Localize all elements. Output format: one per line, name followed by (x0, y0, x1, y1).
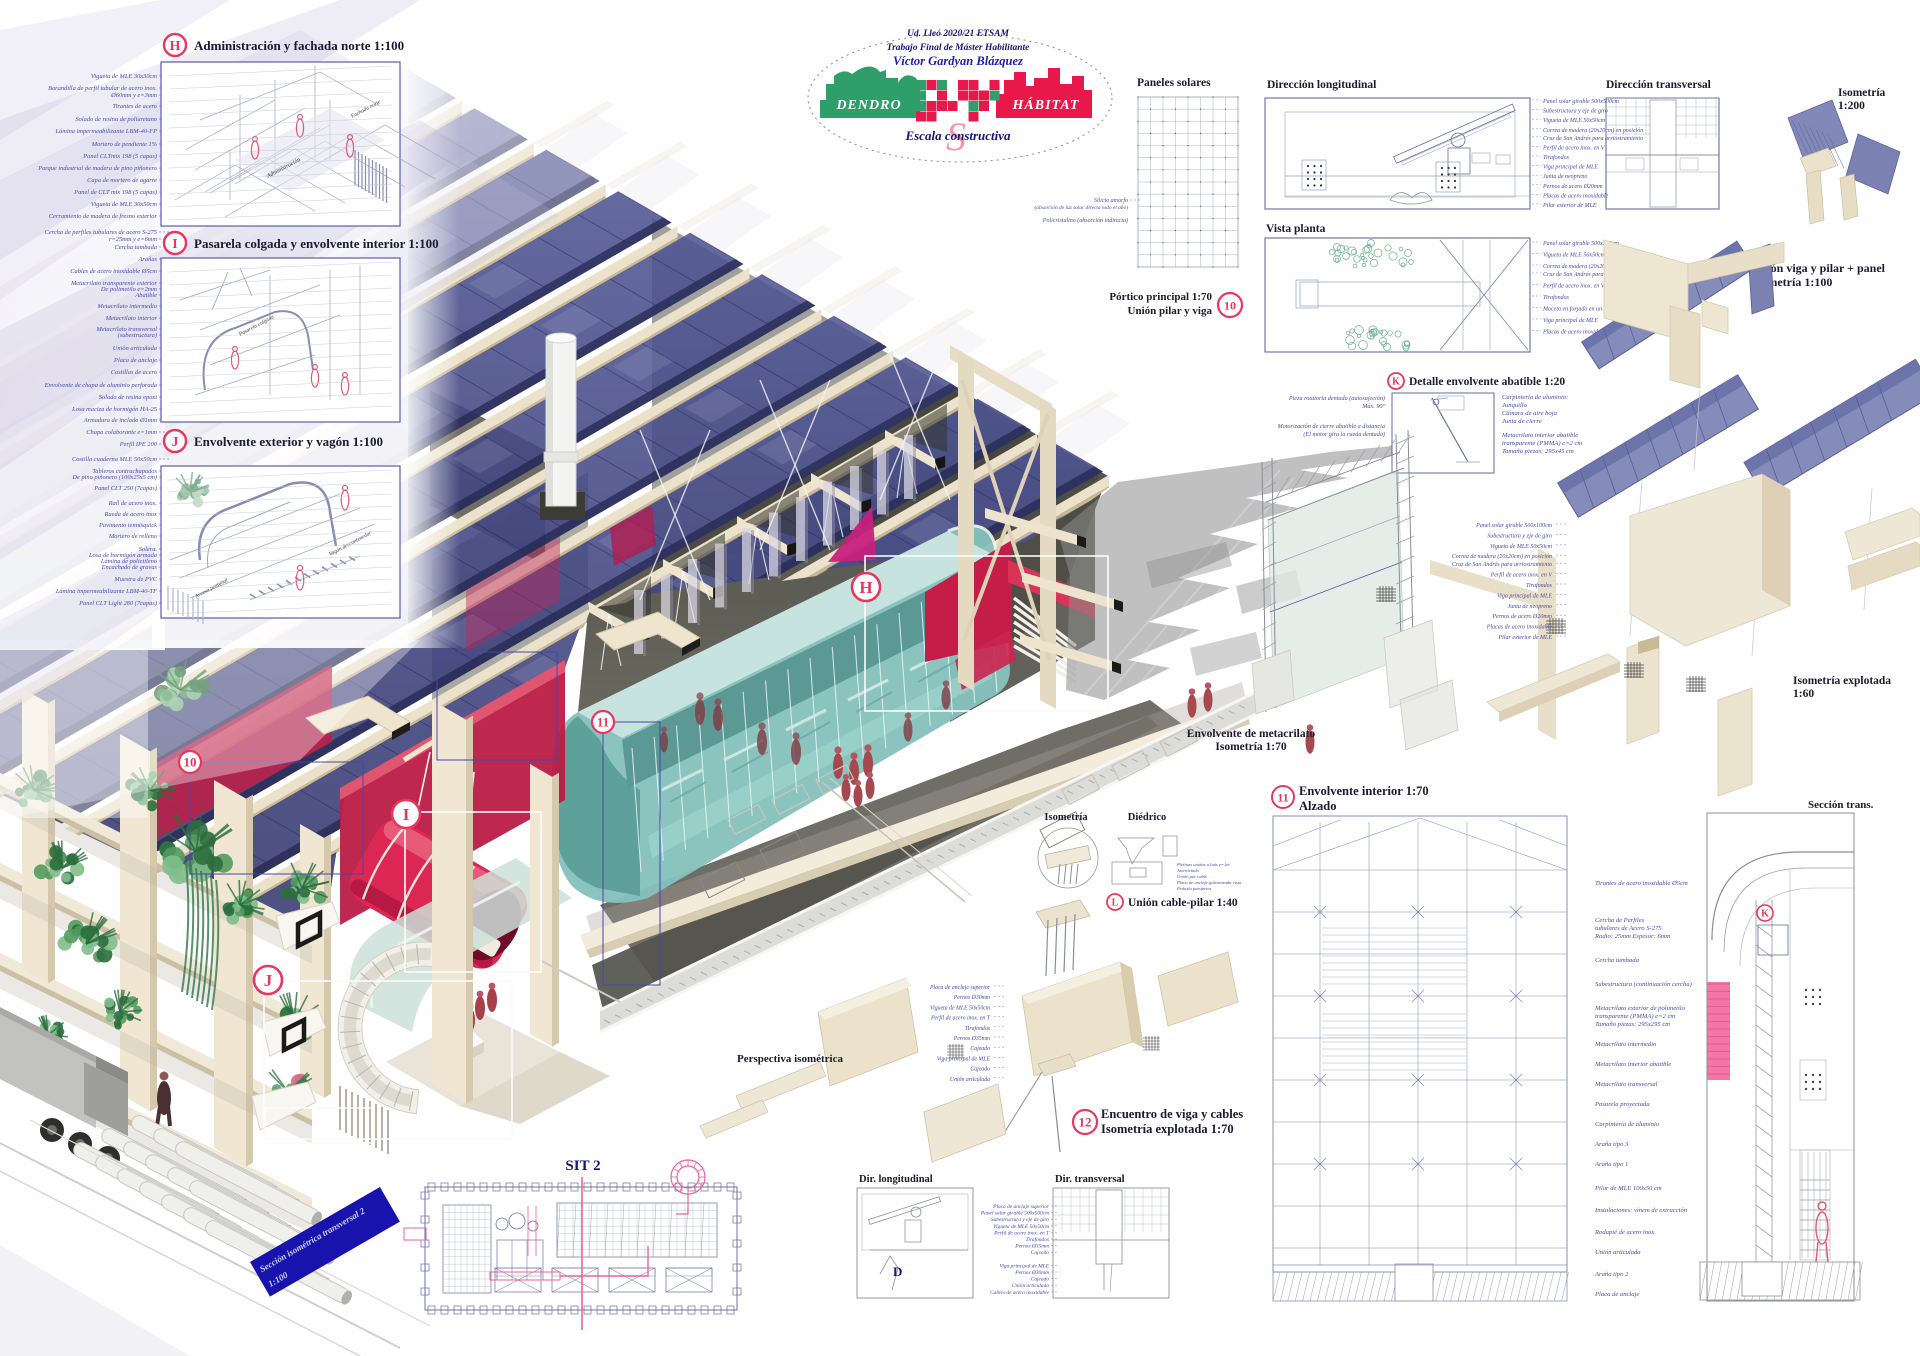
svg-text:Isometría explotada: Isometría explotada (1793, 675, 1891, 687)
svg-text:Pernos Ø30mm: Pernos Ø30mm (953, 995, 990, 1001)
svg-text:Viga principal de MLE: Viga principal de MLE (937, 1056, 991, 1062)
svg-text:HÁBITAT: HÁBITAT (1012, 96, 1080, 113)
svg-text:Lámina impermeabilizante LBM-4: Lámina impermeabilizante LBM-40-TF (55, 588, 157, 595)
svg-text:Panel solar girable 500x500cm: Panel solar girable 500x500cm (980, 1211, 1049, 1217)
svg-text:Envolvente exterior y vagón 1: Envolvente exterior y vagón 1:100 (194, 434, 383, 449)
svg-text:Viga principal de MLE: Viga principal de MLE (1543, 165, 1598, 171)
svg-text:Tirafondos: Tirafondos (1526, 582, 1553, 589)
svg-text:Rodapié de acero inox.: Rodapié de acero inox. (1594, 1229, 1656, 1236)
svg-text:Panel de CLT mix 198 (5 capas): Panel de CLT mix 198 (5 capas) (73, 189, 157, 196)
svg-text:Cercha de perfiles tubulares d: Cercha de perfiles tubulares de acero S-… (44, 229, 157, 236)
svg-text:Cercha tumbada: Cercha tumbada (114, 244, 157, 251)
svg-text:Vista planta: Vista planta (1266, 223, 1326, 235)
svg-text:Panel CLT Light 280 (7capas): Panel CLT Light 280 (7capas) (78, 600, 157, 607)
svg-text:Ø60mm y e=3mm: Ø60mm y e=3mm (110, 92, 157, 99)
svg-text:Pieza rotatoria dentada (autos: Pieza rotatoria dentada (autosujeción) (1288, 395, 1385, 402)
svg-text:Vigueta de MLE 30x50cm: Vigueta de MLE 30x50cm (91, 201, 157, 208)
svg-text:10: 10 (184, 755, 197, 770)
svg-text:1:60: 1:60 (1793, 688, 1814, 700)
svg-text:Carpintería de aluminio:: Carpintería de aluminio: (1502, 394, 1568, 401)
svg-text:Subestructura y eje de giro: Subestructura y eje de giro (1543, 109, 1608, 115)
svg-text:Sección trans.: Sección trans. (1808, 799, 1874, 811)
svg-text:Unión cable-pilar 1:40: Unión cable-pilar 1:40 (1128, 897, 1238, 909)
svg-text:Pernos de acero Ø20mm: Pernos de acero Ø20mm (1491, 614, 1552, 620)
svg-text:Vigueta de MLE 50x50cm: Vigueta de MLE 50x50cm (1543, 253, 1606, 259)
svg-text:Junquillo: Junquillo (1502, 402, 1528, 409)
svg-text:Viga principal de MLE: Viga principal de MLE (1497, 593, 1552, 599)
svg-text:Placas de acero inoxidable: Placas de acero inoxidable (1486, 625, 1553, 631)
svg-text:Perfil de acero inox. en T: Perfil de acero inox. en T (993, 1229, 1050, 1236)
svg-text:Unión pilar y viga: Unión pilar y viga (1128, 305, 1213, 317)
svg-text:Lámina impermeabilizante LBM-4: Lámina impermeabilizante LBM-40-FP (54, 128, 157, 135)
svg-text:Pernos Ø35mm: Pernos Ø35mm (1014, 1244, 1049, 1250)
svg-text:Peñasla parapetos: Peñasla parapetos (1176, 886, 1212, 891)
svg-text:Costilla cuaderna MLE 50x50cm: Costilla cuaderna MLE 50x50cm (72, 456, 157, 463)
svg-text:Pasarela colgada y envolvente: Pasarela colgada y envolvente interior 1… (194, 236, 439, 251)
svg-text:Tamaño piezas: 295x295 cm: Tamaño piezas: 295x295 cm (1595, 1021, 1670, 1028)
svg-text:Placas de acero inoxidable: Placas de acero inoxidable (1542, 193, 1609, 199)
svg-text:Losa maciza de hormigón HA-25: Losa maciza de hormigón HA-25 (71, 406, 157, 413)
svg-text:Tirafondos: Tirafondos (1543, 154, 1570, 161)
svg-text:Metacrilato interior abatible: Metacrilato interior abatible (1594, 1061, 1671, 1068)
svg-text:Radio: 25mm Espesor: 6mm: Radio: 25mm Espesor: 6mm (1594, 933, 1671, 940)
svg-text:Isometría 1:70: Isometría 1:70 (1215, 741, 1286, 753)
svg-text:Solado de resina epoxi: Solado de resina epoxi (99, 394, 157, 401)
svg-text:Abatible: Abatible (134, 292, 157, 299)
svg-text:Cruz de San Andrés para arrios: Cruz de San Andrés para arriostramiento (1452, 562, 1552, 568)
svg-text:Cajeado: Cajeado (970, 1046, 990, 1052)
svg-text:Perfil de acero inox. en V: Perfil de acero inox. en V (1542, 144, 1606, 151)
svg-text:(El motor gira la rueda dentad: (El motor gira la rueda dentada) (1303, 431, 1385, 438)
svg-text:Pilar exterior de MLE: Pilar exterior de MLE (1498, 635, 1553, 641)
svg-text:(subestructura): (subestructura) (118, 332, 157, 339)
svg-text:Cajeado: Cajeado (970, 1067, 990, 1073)
svg-text:Cercha tumbada: Cercha tumbada (1595, 957, 1640, 964)
svg-text:DENDRO: DENDRO (835, 98, 901, 113)
svg-text:10: 10 (1224, 298, 1236, 312)
svg-text:Administración y fachada norte: Administración y fachada norte 1:100 (194, 38, 404, 53)
svg-text:Araña tipo 1: Araña tipo 1 (1594, 1161, 1628, 1168)
svg-text:Unión articulada: Unión articulada (950, 1077, 990, 1083)
svg-text:Carpintería de aluminio: Carpintería de aluminio (1595, 1121, 1660, 1128)
svg-text:Unión articulada: Unión articulada (1595, 1249, 1641, 1256)
svg-text:Costillas de acero: Costillas de acero (111, 369, 157, 376)
svg-text:Envolvente de metacrilato: Envolvente de metacrilato (1187, 728, 1316, 740)
svg-text:Perfil IPE 200: Perfil IPE 200 (119, 441, 158, 448)
svg-text:Pletinas unidas a laús e=1m: Pletinas unidas a laús e=1m (1176, 862, 1230, 867)
svg-text:Subestructura (continuación ce: Subestructura (continuación cercha) (1595, 981, 1692, 988)
svg-text:Perfil de acero inox. en V: Perfil de acero inox. en V (1490, 572, 1554, 579)
svg-text:Escala constructiva: Escala constructiva (904, 128, 1011, 143)
svg-text:Araña tipo 2: Araña tipo 2 (1594, 1271, 1629, 1278)
svg-text:Pernos Ø35mm: Pernos Ø35mm (953, 1036, 990, 1042)
svg-text:Máx. 90°: Máx. 90° (1361, 403, 1385, 410)
svg-text:Viga principal de MLE: Viga principal de MLE (1000, 1263, 1050, 1269)
svg-text:Subestructura y eje de giro: Subestructura y eje de giro (991, 1217, 1049, 1223)
svg-text:(absorción de luz solar direct: (absorción de luz solar directa todo el … (1035, 204, 1129, 211)
svg-text:Tamaño piezas: 295x45 cm: Tamaño piezas: 295x45 cm (1502, 448, 1574, 455)
svg-text:Panel CLT 250 (7capas): Panel CLT 250 (7capas) (93, 485, 157, 492)
svg-text:Araña tipo 3: Araña tipo 3 (1594, 1141, 1629, 1148)
svg-text:Placa de anclaje superior: Placa de anclaje superior (929, 985, 991, 991)
svg-text:Pasarela proyectada: Pasarela proyectada (1594, 1101, 1650, 1108)
svg-text:Encuentro de viga y cables: Encuentro de viga y cables (1101, 1107, 1243, 1121)
svg-text:Metacrilato exterior de polime: Metacrilato exterior de polimetilo (1594, 1005, 1686, 1012)
svg-text:Motorización de cierre abatibl: Motorización de cierre abatible a distan… (1276, 423, 1385, 430)
svg-text:Detalle envolvente abatible: Detalle envolvente abatible 1:20 (1409, 376, 1565, 388)
svg-text:tubulares de Acero S-275: tubulares de Acero S-275 (1595, 925, 1662, 932)
svg-text:Pavimento tennisquick: Pavimento tennisquick (98, 522, 157, 529)
svg-text:Unión articulada: Unión articulada (1012, 1283, 1050, 1289)
svg-text:J: J (172, 435, 179, 450)
svg-text:H: H (859, 578, 872, 597)
svg-text:Raíl de acero inox.: Raíl de acero inox. (108, 500, 158, 507)
svg-text:Perspectiva isométrica: Perspectiva isométrica (737, 1053, 843, 1065)
svg-text:Metacrilato intermedio: Metacrilato intermedio (1594, 1041, 1657, 1048)
svg-text:Diédrico: Diédrico (1128, 812, 1167, 823)
svg-text:Unión articulada: Unión articulada (113, 345, 157, 352)
svg-text:Junta de cierre: Junta de cierre (1502, 418, 1542, 425)
svg-text:Perfil de acero inox. en T: Perfil de acero inox. en T (930, 1015, 991, 1022)
svg-text:Pórtico principal 1:70: Pórtico principal 1:70 (1109, 291, 1212, 303)
svg-text:K: K (1392, 377, 1400, 388)
svg-text:Cerramiento de madera de fres: Cerramiento de madera de fresno exterior (49, 213, 158, 220)
svg-text:L: L (1112, 898, 1119, 909)
svg-text:Capa de mortero de agarre: Capa de mortero de agarre (87, 177, 157, 184)
svg-text:Encachado de gravas: Encachado de gravas (101, 564, 158, 571)
svg-text:D: D (893, 1264, 902, 1279)
svg-text:Placa de anclaje galvanizada v: Placa de anclaje galvanizada vista (1176, 880, 1242, 885)
svg-text:Cables de acero inoxidable Ø5c: Cables de acero inoxidable Ø5cm (70, 268, 157, 275)
svg-text:Dir. longitudinal: Dir. longitudinal (859, 1174, 933, 1185)
svg-text:Paneles solares: Paneles solares (1137, 77, 1211, 89)
svg-text:J: J (264, 971, 273, 990)
svg-text:Pilar exterior de MLE: Pilar exterior de MLE (1542, 203, 1597, 209)
svg-text:transparente (PMMA) e=2 cm: transparente (PMMA) e=2 cm (1595, 1013, 1675, 1020)
svg-text:Junta de neopreno: Junta de neopreno (1508, 604, 1552, 610)
svg-text:Muestra de PVC: Muestra de PVC (113, 576, 157, 583)
svg-text:Viga principal de MLE: Viga principal de MLE (1543, 318, 1598, 324)
svg-text:Cruz de San Andrés para arrios: Cruz de San Andrés para arriostramiento (1543, 136, 1643, 142)
svg-text:Envolvente de chapa de alumini: Envolvente de chapa de aluminio perforad… (44, 382, 157, 389)
svg-text:Isometría explotada 1:70: Isometría explotada 1:70 (1101, 1122, 1234, 1136)
svg-text:Envolvente interior 1:70: Envolvente interior 1:70 (1299, 784, 1429, 798)
svg-text:H: H (170, 39, 181, 54)
svg-text:Unión por cable: Unión por cable (1177, 874, 1207, 879)
svg-text:Cercha de Perfiles: Cercha de Perfiles (1595, 917, 1645, 924)
svg-text:Solado de resina de poliuretan: Solado de resina de poliuretano (75, 116, 157, 123)
svg-text:Perfil de acero inox. en V: Perfil de acero inox. en V (1542, 283, 1606, 290)
svg-text:Dirección longitudinal: Dirección longitudinal (1267, 79, 1376, 91)
svg-text:Armadura de inclado Ø1mm: Armadura de inclado Ø1mm (83, 417, 158, 424)
svg-text:Víctor Gardyan Blázquez: Víctor Gardyan Blázquez (893, 54, 1023, 68)
svg-text:Alzado: Alzado (1299, 799, 1337, 813)
svg-text:Mortero de relleno: Mortero de relleno (108, 533, 157, 540)
svg-text:Cables de acero inoxidable: Cables de acero inoxidable (990, 1290, 1050, 1296)
svg-text:I: I (172, 237, 177, 252)
svg-text:Cajeado: Cajeado (1031, 1277, 1050, 1283)
svg-text:Policristalino (absorción indi: Policristalino (absorción indirecta) (1042, 217, 1128, 224)
svg-text:Tirantes de acero inoxidable Ø: Tirantes de acero inoxidable Ø5cm (1595, 880, 1688, 887)
svg-text:Vigueta de MLE 50x50cm: Vigueta de MLE 50x50cm (1490, 544, 1553, 550)
svg-text:Dirección transversal: Dirección transversal (1606, 79, 1711, 91)
svg-text:Metacrilato transversal: Metacrilato transversal (1594, 1081, 1658, 1088)
svg-text:12: 12 (1079, 1115, 1092, 1130)
svg-text:1:200: 1:200 (1838, 100, 1865, 112)
svg-text:Tirafondos: Tirafondos (1026, 1236, 1049, 1243)
svg-text:Pernos Ø30mm: Pernos Ø30mm (1014, 1270, 1049, 1276)
svg-text:Panel solar girable 500x100cm: Panel solar girable 500x100cm (1475, 523, 1552, 529)
svg-text:Mortero de pendiente 1%: Mortero de pendiente 1% (91, 141, 157, 148)
svg-text:Vigueta de MLE 30x30cm: Vigueta de MLE 30x30cm (91, 73, 157, 80)
svg-text:Silicio amorfo: Silicio amorfo (1094, 197, 1128, 204)
svg-text:Panel CLTmix 198 (5 capas): Panel CLTmix 198 (5 capas) (82, 153, 157, 160)
svg-text:Tirantes de acero: Tirantes de acero (113, 103, 158, 110)
svg-text:Subestructura y eje de giro: Subestructura y eje de giro (1487, 533, 1552, 539)
svg-text:Metacrilato interior: Metacrilato interior (105, 315, 158, 322)
svg-text:Instalaciones: vínem de extrac: Instalaciones: vínem de extracción (1594, 1207, 1688, 1214)
svg-text:11: 11 (597, 715, 609, 730)
svg-text:Cajeado: Cajeado (1031, 1250, 1050, 1256)
svg-text:Pilar de MLE 100x50 cm: Pilar de MLE 100x50 cm (1594, 1185, 1662, 1192)
svg-text:r=25mm y e=6mm: r=25mm y e=6mm (109, 236, 157, 243)
svg-text:Pernos de acero Ø20mm: Pernos de acero Ø20mm (1542, 184, 1603, 190)
svg-text:Isometría: Isometría (1044, 812, 1088, 823)
svg-text:Tirafondos: Tirafondos (1543, 294, 1570, 301)
svg-text:Dir. transversal: Dir. transversal (1055, 1174, 1125, 1185)
svg-text:Vigueta de MLE 50x50cm: Vigueta de MLE 50x50cm (1543, 118, 1606, 124)
svg-text:transparente (PMMA) e=2 cm: transparente (PMMA) e=2 cm (1502, 440, 1582, 447)
svg-text:Chapa colaborante e=1mm: Chapa colaborante e=1mm (86, 429, 157, 436)
svg-text:SIT 2: SIT 2 (565, 1158, 600, 1174)
svg-text:Correa de madera (20x20cm) en: Correa de madera (20x20cm) en posición (1543, 127, 1643, 134)
svg-text:Metacrilato intermedio: Metacrilato intermedio (97, 303, 157, 310)
svg-text:Junta de neopreno: Junta de neopreno (1543, 174, 1587, 180)
svg-text:Barandilla de perfil tubular d: Barandilla de perfil tubular de acero in… (48, 85, 157, 92)
svg-text:Placa de anclaje: Placa de anclaje (113, 357, 157, 364)
svg-text:Rueda de acero inox: Rueda de acero inox (104, 511, 158, 518)
svg-text:Tirafondos: Tirafondos (965, 1025, 991, 1032)
svg-text:Placa de anclaje: Placa de anclaje (1594, 1291, 1639, 1298)
svg-text:11: 11 (1277, 790, 1288, 804)
svg-text:Placa de anclaje superior: Placa de anclaje superior (992, 1204, 1050, 1210)
svg-text:Trabajo Final de Máster Habili: Trabajo Final de Máster Habilitante (887, 43, 1030, 53)
svg-text:Vigueta de MLE 50x50cm: Vigueta de MLE 50x50cm (930, 1005, 990, 1011)
svg-text:I: I (403, 805, 410, 824)
svg-text:Isometría: Isometría (1838, 87, 1886, 99)
svg-text:Vigueta de MLE 50x50cm: Vigueta de MLE 50x50cm (993, 1224, 1049, 1230)
svg-text:Atornietado: Atornietado (1176, 868, 1200, 873)
svg-text:Correa de madera (20x20cm) en: Correa de madera (20x20cm) en posición (1452, 553, 1552, 560)
svg-text:Panel solar girable 500x500cm: Panel solar girable 500x500cm (1542, 99, 1619, 105)
svg-text:Parque industrial de madera de: Parque industrial de madera de pino piño… (37, 165, 157, 172)
svg-text:De pino piñonero (100x25x5 cm): De pino piñonero (100x25x5 cm) (71, 474, 157, 481)
svg-text:Arañas: Arañas (138, 256, 158, 263)
svg-text:Cámara de aire hoja: Cámara de aire hoja (1502, 410, 1558, 417)
svg-text:K: K (1761, 909, 1769, 920)
svg-text:Metacrilato interior abatible: Metacrilato interior abatible (1501, 432, 1578, 439)
